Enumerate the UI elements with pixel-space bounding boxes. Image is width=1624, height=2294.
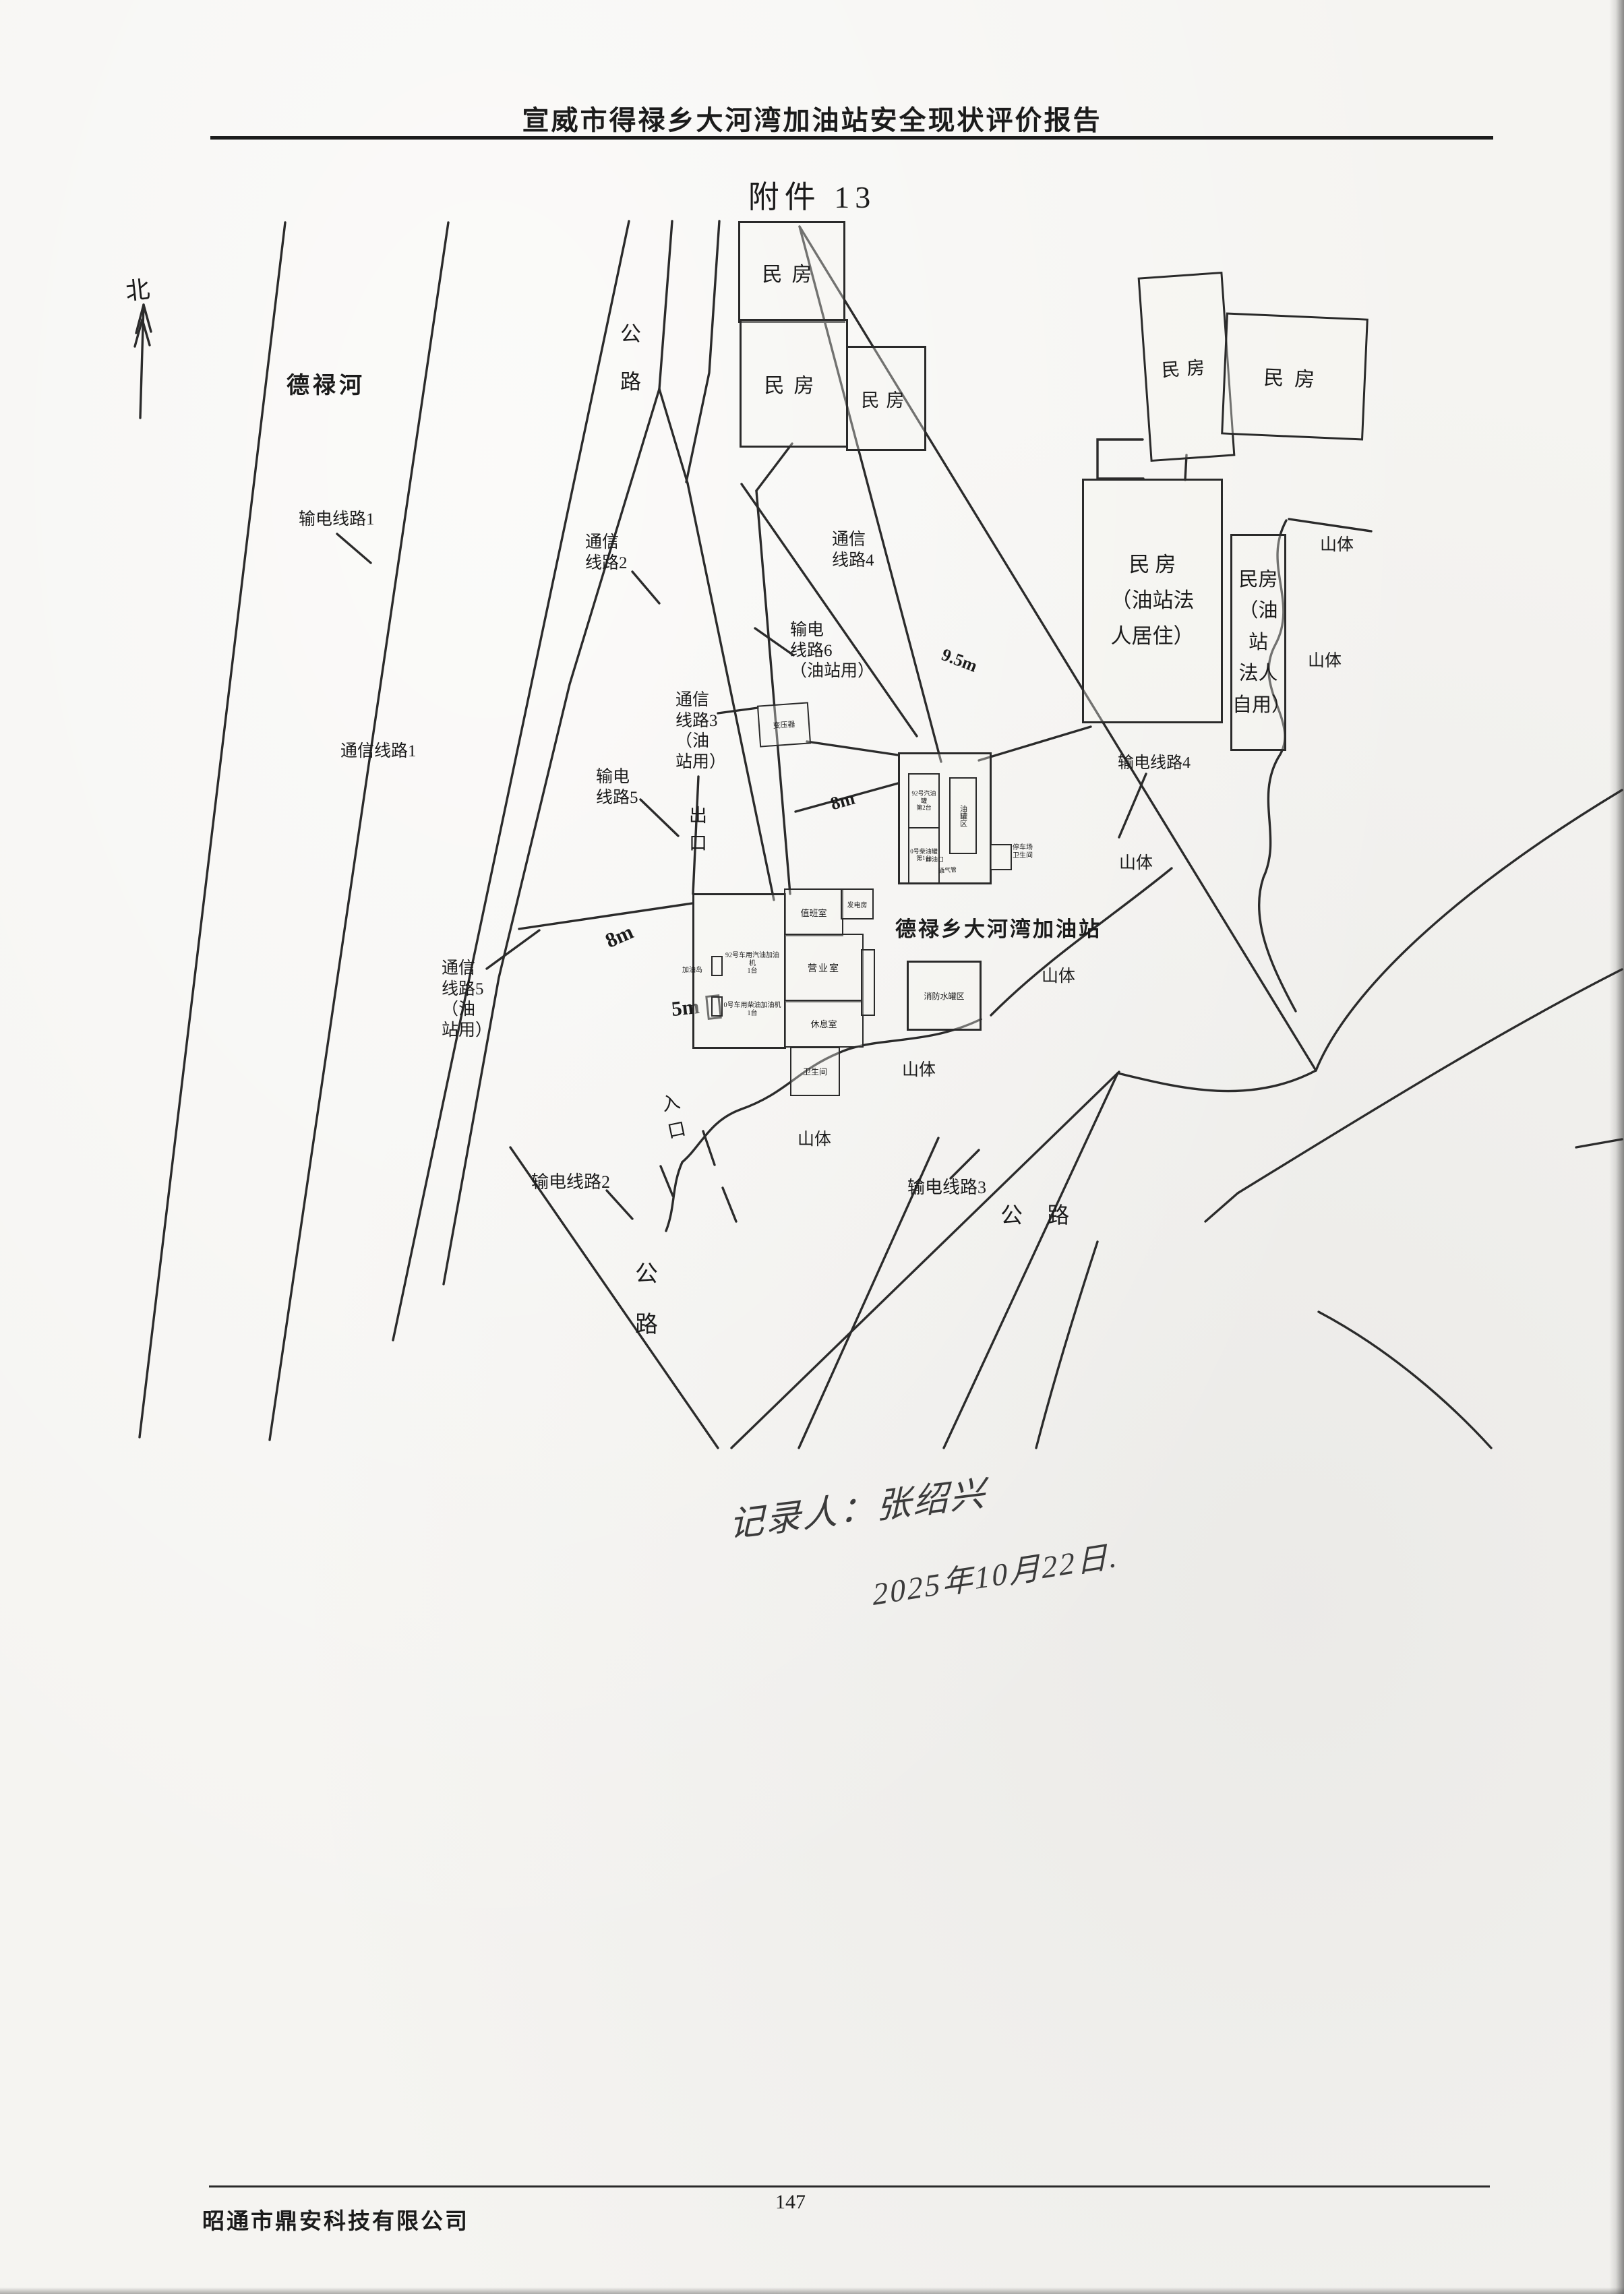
mountain-label: 山体 [1308,651,1342,672]
comm-line-5-label: 通信 线路5 （油 站用） [442,959,492,1041]
house-label: 民房 [862,386,911,412]
owner-residence-house-box: 民 房 （油站法 人居住） [1082,479,1223,723]
generator-room-label: 发电房 [847,899,868,909]
diesel-dispenser-label: 0号车用柴油加油机1台 [723,1002,781,1017]
exit-label: 出 口 [689,802,707,857]
side-strip [861,949,875,1016]
house-label: 民房 [1161,352,1213,382]
vent-pipe-label: 通气管 [938,866,957,875]
footer-page-number: 147 [775,2191,806,2214]
house-box: 民房 [738,221,845,323]
comm-line-1-label: 通信线路1 [340,742,417,762]
handwritten-date: 2025年10月22日. [872,1531,1120,1614]
toilet-room: 卫生间 [790,1047,840,1096]
owner-own-label: 民房 （油站 法人 自用） [1232,564,1284,721]
transformer-box: 变压器 [757,702,811,747]
dimension-8m-bottom: 8m [601,919,637,953]
road-label-bottom: 公 路 [635,1250,658,1351]
house-label: 民房 [762,258,822,287]
footer-rule [209,2185,1490,2187]
diesel-tank-cell: 0号柴油罐 第1台 [909,828,938,881]
business-room-label: 营业室 [808,961,840,975]
owner-own-house-box: 民房 （油站 法人 自用） [1230,534,1286,751]
tank-area-box: 油罐区 [949,777,977,854]
handwritten-recorder-signature: 记录人：张绍兴 [729,1464,987,1546]
scan-edge-shadow-bottom [0,2287,1624,2294]
gas-tank-label: 92号汽油罐 第2台 [909,790,938,811]
comm-line-4-label: 通信 线路4 [832,530,874,571]
transformer-label: 变压器 [773,719,795,731]
power-line-3-label: 输电线路3 [907,1177,986,1199]
comm-line-2-label: 通信 线路2 [585,533,628,574]
parking-toilet-label: 停车场 卫生间 [1013,844,1044,860]
dimension-9-5m: 9.5m [938,644,980,677]
unload-port-label: 卸油口 [926,856,944,864]
scan-edge-shadow-right [1609,0,1624,2294]
footer-company: 昭通市鼎安科技有限公司 [202,2203,469,2235]
attachment-title: 附件 13 [0,173,1624,217]
rest-room: 休息室 [784,1000,864,1048]
duty-room-label: 值班室 [800,906,826,919]
river-label: 德禄河 [287,372,365,400]
station-name-label: 德禄乡大河湾加油站 [895,917,1102,942]
house-box: 民房 [846,346,926,451]
mountain-label: 山体 [798,1130,831,1151]
house-label: 民房 [764,369,824,398]
mountain-label: 山体 [1119,853,1153,874]
duty-room: 值班室 [784,888,843,936]
scanned-report-page: 宣威市得禄乡大河湾加油站安全现状评价报告 附件 13 [0,0,1624,2294]
pump-island-tick [711,996,723,1017]
power-line-5-label: 输电 线路5 [596,767,638,808]
generator-room: 发电房 [841,888,874,919]
north-label: 北 [123,270,151,307]
house-box: 民房 [1221,312,1369,440]
comm-line-3-label: 通信 线路3 （油 站用） [675,690,726,773]
mountain-label: 山体 [1320,535,1354,556]
pump-island-label: 加油岛 [682,967,702,975]
road-label-top: 公 路 [620,310,641,406]
power-line-2-label: 输电线路2 [531,1172,610,1193]
power-line-4-label: 输电线路4 [1118,754,1191,773]
report-header-title: 宣威市得禄乡大河湾加油站安全现状评价报告 [0,98,1624,138]
gas-dispenser-label: 92号车用汽油加油机 1台 [723,952,781,975]
power-line-1-label: 输电线路1 [299,510,375,531]
fire-water-label: 消防水罐区 [924,990,964,1002]
tank-pair-box: 92号汽油罐 第2台 0号柴油罐 第1台 [908,773,940,884]
label-leader-lines [337,534,1146,1219]
north-arrow-icon [135,305,151,418]
dimension-8m-top: 8m [828,787,858,816]
header-rule [210,136,1493,140]
mountain-label: 山体 [1042,967,1075,988]
toilet-label: 卫生间 [803,1066,827,1077]
road-label-right: 公 路 [1000,1203,1079,1230]
business-room: 营业室 [784,934,864,1002]
fire-water-box: 消防水罐区 [907,961,982,1031]
owner-residence-label: 民 房 （油站法 人居住） [1111,547,1195,654]
rest-room-label: 休息室 [810,1017,837,1030]
house-label: 民房 [1263,361,1327,393]
house-box: 民房 [740,319,848,448]
entrance-label: 入 口 [659,1088,688,1145]
pump-island-tick [711,956,723,976]
gas-tank-cell: 92号汽油罐 第2台 [909,775,938,828]
mountain-label: 山体 [902,1060,936,1081]
small-outbuilding-box [990,844,1012,870]
power-line-6-label: 输电 线路6 （油站用） [790,620,874,682]
tank-area-label: 油罐区 [958,805,969,827]
